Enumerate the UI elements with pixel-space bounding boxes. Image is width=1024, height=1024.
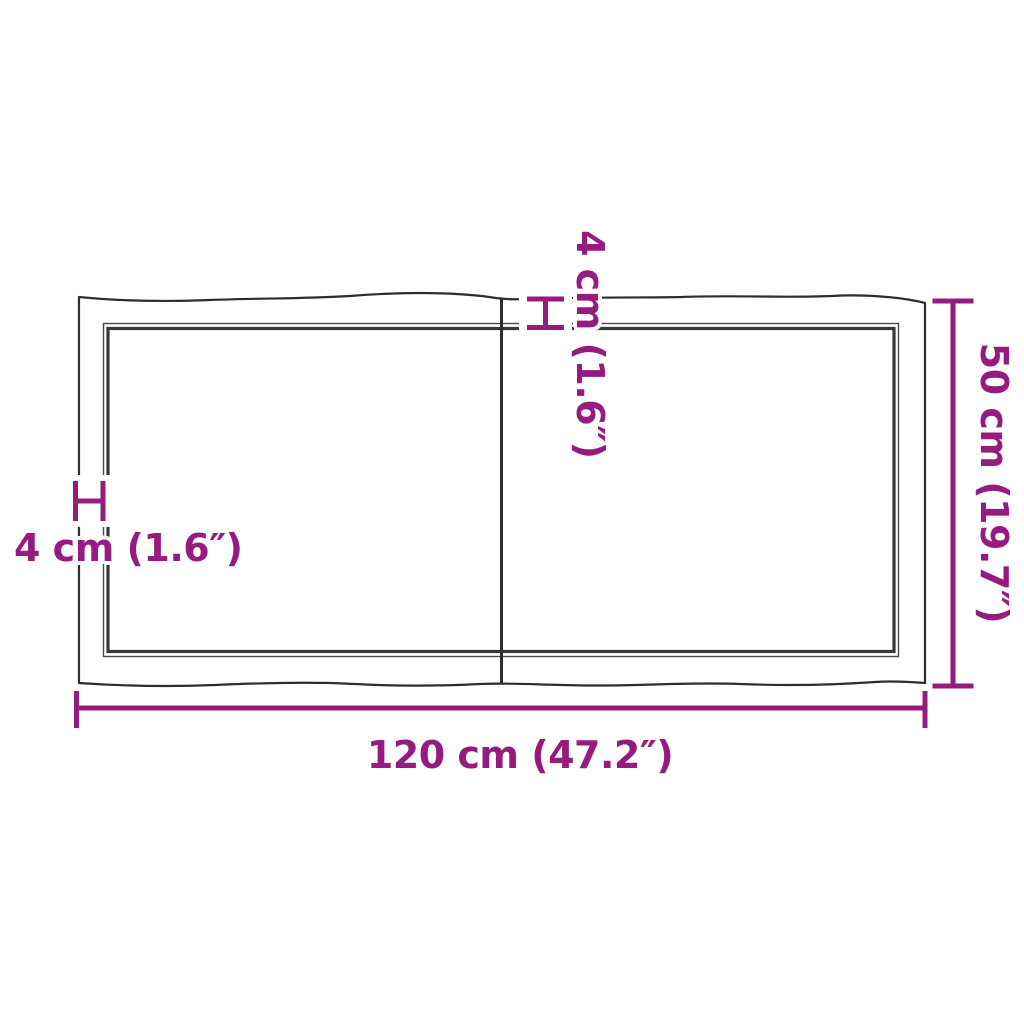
height-dimension bbox=[933, 299, 974, 689]
height-dimension-line bbox=[951, 299, 956, 689]
height-dimension-label: 50 cm (19.7″) bbox=[972, 333, 1016, 633]
width-dimension-line bbox=[74, 706, 928, 711]
top-marker-connector bbox=[543, 297, 548, 331]
dimension-diagram bbox=[0, 0, 1024, 1024]
edge-thickness-top-marker bbox=[519, 291, 572, 336]
diagram-canvas: 120 cm (47.2″) 50 cm (19.7″) 4 cm (1.6″)… bbox=[0, 0, 1024, 1024]
height-dimension-cap-bottom bbox=[933, 684, 974, 689]
width-dimension-label: 120 cm (47.2″) bbox=[320, 733, 720, 777]
width-dimension-cap-right bbox=[923, 691, 928, 728]
edge-thickness-left-marker bbox=[67, 475, 111, 527]
width-dimension bbox=[74, 691, 928, 728]
edge-thickness-top-label: 4 cm (1.6″) bbox=[568, 230, 612, 450]
edge-thickness-left-label: 4 cm (1.6″) bbox=[14, 526, 243, 570]
left-marker-connector bbox=[73, 499, 106, 504]
